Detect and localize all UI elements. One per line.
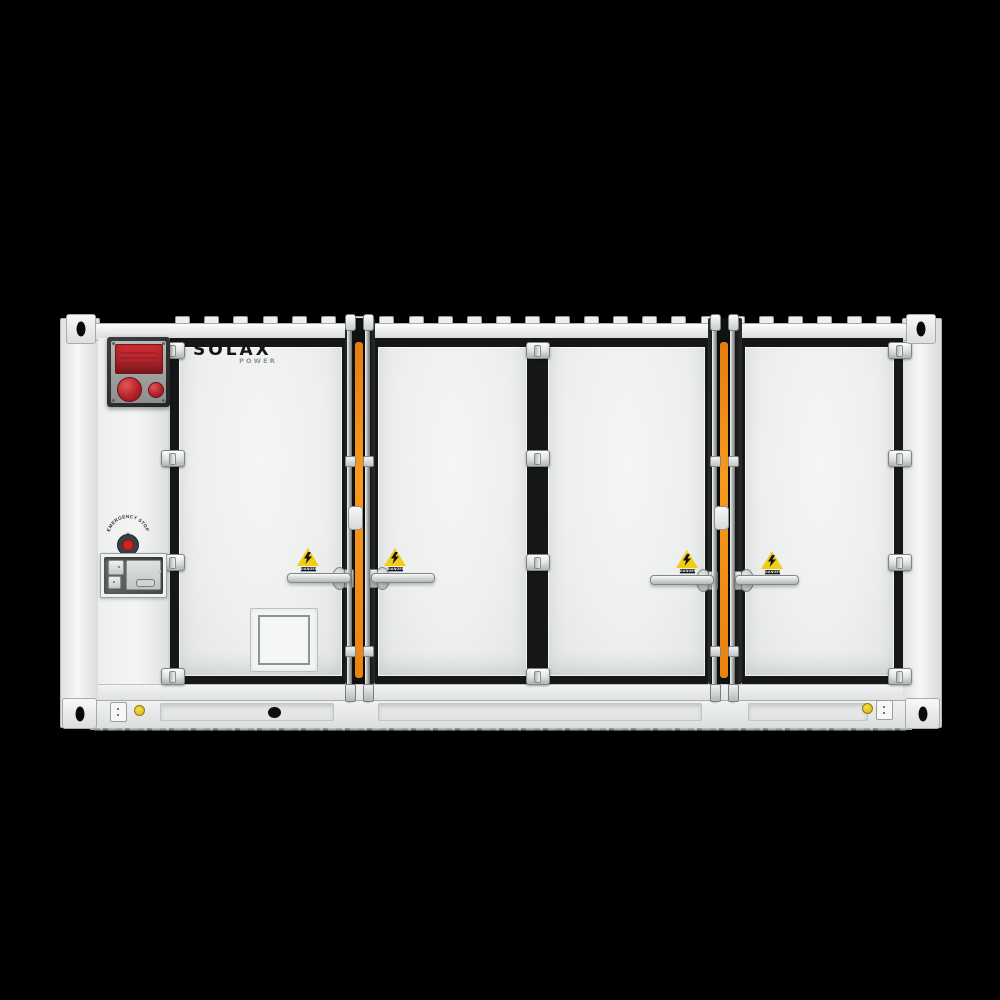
corner-casting-bottom-right: [905, 698, 940, 729]
lockbox-latch-plate: [126, 560, 161, 590]
warning-triangle-icon: [384, 548, 406, 566]
emergency-stop-arc-text: EMERGENCY STOP: [106, 514, 150, 532]
door-handle-lockbox: [100, 553, 167, 598]
socket-box-left: [110, 702, 127, 722]
lockbox-switch-small: [108, 576, 121, 589]
door-2-handle: [371, 573, 435, 583]
lock-rod-guide: [345, 646, 356, 657]
emergency-stop-button: [123, 540, 133, 550]
door-sill: [98, 684, 903, 701]
door-2: [375, 338, 530, 684]
lock-rod-foot: [728, 684, 739, 702]
corner-casting-top-left: [66, 314, 96, 344]
access-panel: [250, 608, 318, 672]
bottom-recess-panel: [160, 703, 334, 721]
socket-box-right: [876, 700, 893, 720]
center-door-frame: [530, 338, 545, 684]
door-hinge: [526, 668, 550, 685]
lightning-bolt-icon: [390, 552, 400, 564]
image-background: SOLAX POWER EMERGENCY STOP: [0, 0, 1000, 1000]
casting-hole-icon: [75, 706, 84, 721]
lock-rod-guide: [710, 456, 721, 467]
door-3: [545, 338, 708, 684]
lock-rod-guide: [728, 646, 739, 657]
bottom-recess-panel: [378, 703, 702, 721]
drain-hole-icon: [268, 707, 281, 718]
door-hinge: [161, 668, 185, 685]
door-hinge: [526, 450, 550, 467]
corner-post-left: [60, 318, 100, 728]
warning-triangle-icon: [676, 550, 698, 568]
danger-text: DANGER: [764, 570, 779, 574]
lightning-bolt-icon: [682, 554, 692, 566]
rod-sleeve: [348, 506, 363, 530]
danger-label: DANGER: [759, 551, 785, 576]
door-hinge: [161, 450, 185, 467]
grounding-label-icon: [134, 705, 145, 716]
danger-text: DANGER: [300, 567, 315, 571]
grounding-label-icon: [862, 703, 873, 714]
lightning-bolt-icon: [303, 552, 313, 564]
fire-alarm-display: [115, 344, 163, 374]
door-1-handle: [287, 573, 351, 583]
fire-alarm-button-small: [148, 382, 164, 398]
lock-rod-cap: [345, 314, 356, 331]
door-hinge: [888, 668, 912, 685]
lock-rod: [730, 320, 735, 702]
danger-label: DANGER: [382, 548, 408, 573]
lightning-bolt-icon: [767, 555, 777, 567]
danger-label: DANGER: [674, 550, 700, 575]
warning-triangle-icon: [297, 548, 319, 566]
casting-hole-icon: [918, 706, 927, 721]
door-3-handle: [650, 575, 714, 585]
door-4-handle: [735, 575, 799, 585]
lockbox-switch: [108, 560, 124, 575]
casting-hole-icon: [77, 322, 86, 337]
danger-text: DANGER: [679, 569, 694, 573]
fire-alarm-button-large: [117, 377, 142, 402]
lock-rod-foot: [363, 684, 374, 702]
lock-rod-cap: [728, 314, 739, 331]
corner-casting-bottom-left: [62, 698, 97, 729]
fire-alarm-box: [107, 337, 170, 407]
door-4: [742, 338, 903, 684]
door-hinge: [888, 554, 912, 571]
lock-rod-foot: [345, 684, 356, 702]
warning-triangle-icon: [761, 551, 783, 569]
lockbox-recess: [104, 557, 163, 594]
door-hinge: [888, 342, 912, 359]
lock-rod-cap: [710, 314, 721, 331]
latch-slot: [136, 579, 155, 587]
lock-rod-guide: [345, 456, 356, 467]
bottom-recess-panel: [748, 703, 868, 721]
door-hinge: [526, 554, 550, 571]
danger-text: DANGER: [387, 567, 402, 571]
door-hinge: [888, 450, 912, 467]
lock-rod-foot: [710, 684, 721, 702]
fire-alarm-panel: [111, 341, 166, 403]
danger-label: DANGER: [295, 548, 321, 573]
casting-hole-icon: [917, 322, 926, 337]
lock-rod-cap: [363, 314, 374, 331]
ground-shadow-line: [94, 728, 906, 731]
corner-casting-top-right: [906, 314, 936, 344]
corner-post-right: [902, 318, 942, 728]
door-hinge: [526, 342, 550, 359]
lock-rod-guide: [728, 456, 739, 467]
lock-rod-guide: [710, 646, 721, 657]
brand-logo: SOLAX POWER: [193, 341, 279, 365]
rod-sleeve: [714, 506, 729, 530]
storage-container: SOLAX POWER EMERGENCY STOP: [60, 310, 940, 730]
lock-rod-guide: [363, 456, 374, 467]
lock-rod-guide: [363, 646, 374, 657]
lock-rod: [365, 320, 370, 702]
lockbox-pin: [158, 570, 161, 573]
access-panel-frame: [258, 615, 310, 665]
